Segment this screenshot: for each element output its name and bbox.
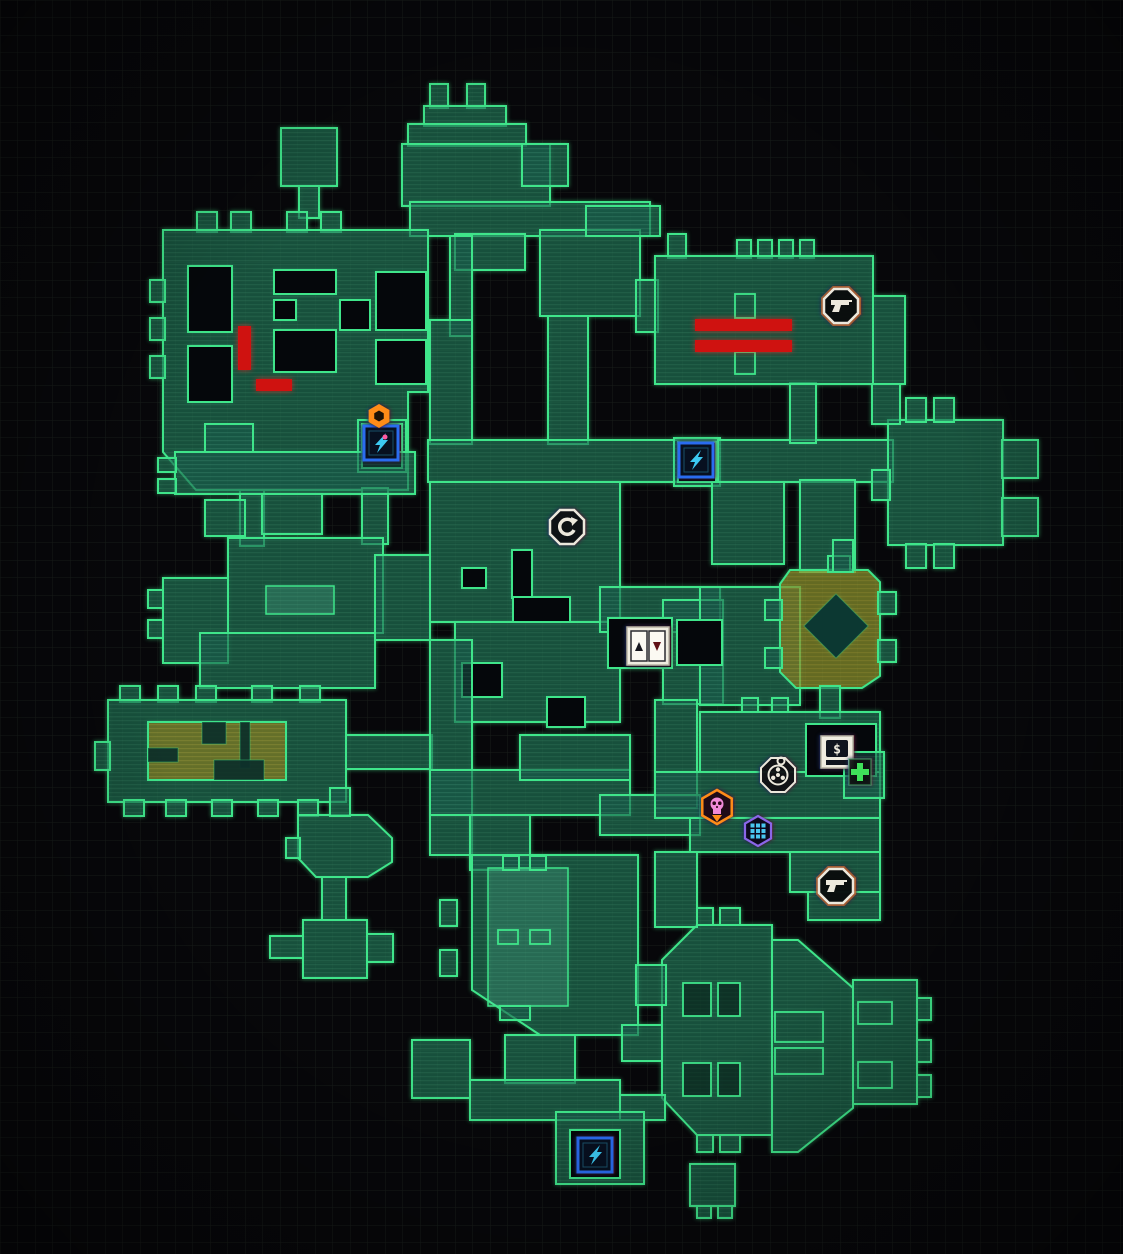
se-teeth-1	[742, 698, 758, 712]
weapon-pickup-icon[interactable]	[817, 867, 855, 905]
nw-cut-1	[188, 266, 232, 332]
mid-cut-5	[547, 697, 585, 727]
sc-inner-tab-2	[530, 856, 546, 870]
sw-gold-cut-1	[148, 748, 178, 762]
sw-teeth-b1	[124, 800, 144, 816]
game-map-svg: $	[0, 0, 1123, 1254]
mid-cut-2	[512, 550, 532, 598]
nw-cut-4	[274, 300, 296, 320]
br-south-teeth-1	[697, 1206, 711, 1218]
br-room-3	[683, 1063, 711, 1096]
tower-right-ext	[522, 144, 568, 186]
east-corridor	[718, 440, 893, 482]
br-right	[853, 980, 917, 1104]
hazard-medal-icon[interactable]	[761, 758, 795, 793]
terminal-rotate-icon[interactable]	[550, 510, 584, 544]
east-teeth-3	[906, 544, 926, 568]
nw-tab-3	[150, 356, 165, 378]
br-room-2	[718, 983, 740, 1016]
center-stem	[548, 316, 588, 444]
br-link-up	[655, 852, 697, 927]
east-teeth-2	[934, 398, 954, 422]
east-lower-2	[712, 482, 784, 564]
west-room-2	[262, 494, 322, 534]
sw2-link	[330, 788, 350, 816]
mid-cut-1	[462, 568, 486, 588]
south-vert	[430, 640, 472, 855]
tower-battlement-1	[430, 84, 448, 108]
annex-square	[281, 128, 337, 186]
tower-upper	[408, 124, 526, 146]
west-tab-1	[158, 458, 176, 472]
nw-stem-2	[362, 488, 388, 544]
br-teeth-t1	[697, 908, 713, 925]
sc-tab-l1	[440, 900, 457, 926]
mid-cut-6	[677, 620, 722, 665]
br-teeth-b2	[720, 1135, 740, 1152]
bridge-top-right	[586, 206, 660, 236]
sw-gold-cut-4	[214, 760, 264, 780]
sw-gold-cut-2	[202, 722, 226, 744]
south-block	[520, 735, 630, 780]
hazard-bar-nw-vertical	[238, 326, 251, 370]
west-room	[205, 424, 253, 452]
weapon-pickup-icon[interactable]	[822, 287, 860, 325]
sw-tab-left	[95, 742, 110, 770]
keypad-icon[interactable]	[745, 816, 771, 846]
sw-teeth-b3	[212, 800, 232, 816]
sw-teeth-b2	[166, 800, 186, 816]
wm-bottom	[200, 633, 375, 688]
east-stem	[790, 383, 816, 443]
nw-cut-3	[274, 270, 336, 294]
ne-right	[873, 296, 905, 384]
vault-tab-l1	[765, 600, 782, 620]
hazard-bar-ne-2	[695, 340, 792, 352]
west-tab-2	[158, 479, 176, 493]
east-finger-2	[1002, 498, 1038, 536]
enemy-skull-icon[interactable]	[702, 790, 731, 824]
nw-cut-5	[274, 330, 336, 372]
nw-cut-2	[188, 346, 232, 402]
br-teeth-b1	[697, 1135, 713, 1152]
nw-tab-1	[150, 280, 165, 302]
wm-tab-2	[148, 620, 163, 638]
east-link	[872, 384, 900, 424]
vendor-dollar-icon[interactable]: $	[821, 736, 853, 768]
wm-right-link	[375, 555, 430, 640]
east-finger-1	[1002, 440, 1038, 478]
east-blob	[888, 420, 1003, 545]
vault-stem-top	[833, 540, 853, 572]
br-south-stub	[690, 1164, 735, 1206]
hazard-bar-ne-1	[695, 319, 792, 331]
sw-right-link	[346, 735, 432, 769]
br-connector	[622, 1025, 662, 1061]
stairs-icon[interactable]	[578, 1138, 612, 1172]
br-room-1	[683, 983, 711, 1016]
center-block-top	[540, 230, 640, 316]
sw2-tab	[286, 838, 300, 858]
nw-cut-8	[340, 300, 370, 330]
br-left	[662, 925, 772, 1135]
stairs-icon[interactable]	[364, 426, 398, 460]
vault-tab-r2	[878, 640, 896, 662]
sw2-top	[298, 815, 392, 877]
ne-teeth-1	[668, 234, 686, 258]
sc-inner-tab-1	[503, 856, 519, 870]
east-tab	[872, 470, 890, 500]
east-teeth-4	[934, 544, 954, 568]
mo-link	[636, 965, 666, 1005]
hazard-bar-nw-horizontal	[256, 379, 292, 391]
tower-stem-2	[430, 320, 472, 444]
west-room-3	[205, 500, 245, 536]
game-map-viewport[interactable]: $	[0, 0, 1123, 1254]
sc-inner	[488, 868, 568, 1006]
br-room-4	[718, 1063, 740, 1096]
sw2-tab-l	[270, 936, 303, 958]
wm-inner	[266, 586, 334, 614]
medkit-cross-icon[interactable]	[849, 759, 871, 785]
game-map-screen: $	[0, 0, 1123, 1254]
sw-teeth-b5	[298, 800, 318, 816]
sw2-neck	[322, 877, 346, 920]
nw-cut-7	[376, 340, 426, 384]
elevator-icon[interactable]	[627, 627, 669, 665]
br-south-teeth-2	[718, 1206, 732, 1218]
vault-tab-r1	[878, 592, 896, 614]
stairs-icon[interactable]	[679, 443, 713, 477]
tower-battlement-2	[467, 84, 485, 108]
sc-inner-tab-3	[500, 1006, 530, 1020]
sw2-bottom	[303, 920, 367, 978]
vault-tab-l2	[765, 648, 782, 668]
se-teeth-2	[772, 698, 788, 712]
br-teeth-r3	[917, 1075, 931, 1097]
wm-tab-1	[148, 590, 163, 608]
br-teeth-r1	[917, 998, 931, 1020]
sc-stem	[505, 1035, 575, 1083]
mid-cut-3	[513, 597, 570, 622]
sw-teeth-b4	[258, 800, 278, 816]
br-teeth-t2	[720, 908, 740, 925]
dollar-glyph: $	[833, 743, 841, 758]
bottom-vert	[412, 1040, 470, 1098]
nw-cut-6	[376, 272, 426, 330]
br-teeth-r2	[917, 1040, 931, 1062]
east-teeth-1	[906, 398, 926, 422]
sc-tab-l2	[440, 950, 457, 976]
sw2-tab-r	[367, 934, 393, 962]
nw-tab-2	[150, 318, 165, 340]
